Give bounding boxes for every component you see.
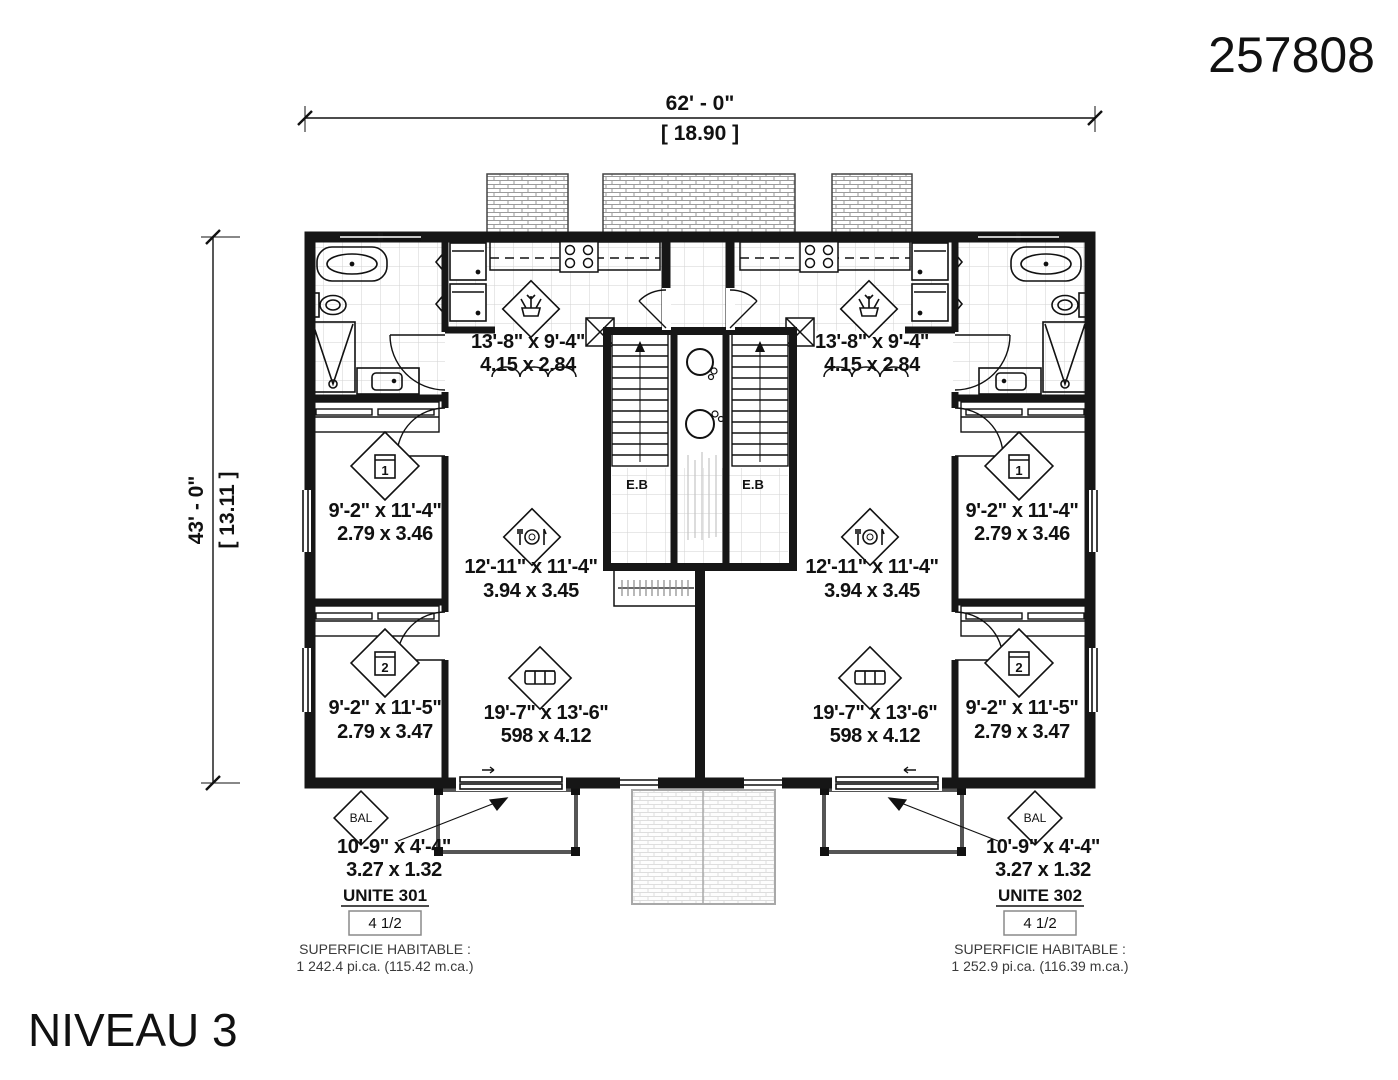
area-title: SUPERFICIE HABITABLE :	[299, 941, 471, 957]
bedroom-number: 2	[381, 660, 388, 675]
dining-dim-imperial: 12'-11" x 11'-4"	[805, 556, 938, 578]
bed-icon: 1	[351, 432, 419, 500]
bed-icon: 1	[985, 432, 1053, 500]
area-value: 1 252.9 pi.ca. (116.39 m.ca.)	[951, 958, 1128, 974]
dryer-icon	[450, 284, 486, 321]
bedroom-number: 1	[381, 463, 388, 478]
height-dimension-metric: [ 13.11 ]	[216, 471, 239, 548]
kitchen-dim-metric: 4.15 x 2.84	[480, 354, 577, 376]
bedroom1-dim-imperial: 9'-2" x 11'-4"	[966, 500, 1079, 522]
unit-302-info: UNITE 302 4 1/2 SUPERFICIE HABITABLE : 1…	[951, 886, 1128, 974]
water-heaters	[686, 349, 724, 438]
balcony-dim-imperial: 10'-9" x 4'-4"	[986, 836, 1100, 858]
dining-dim-metric: 3.94 x 3.45	[483, 580, 579, 602]
living-dim-metric: 598 x 4.12	[830, 725, 921, 747]
dining-dim-metric: 3.94 x 3.45	[824, 580, 920, 602]
unit-configuration: 4 1/2	[368, 915, 401, 932]
balcony-unit-301	[434, 786, 580, 856]
level-title: NIVEAU 3	[28, 1004, 238, 1056]
living-dim-metric: 598 x 4.12	[501, 725, 592, 747]
bedroom2-dim-imperial: 9'-2" x 11'-5"	[966, 697, 1079, 719]
bedroom2-dim-imperial: 9'-2" x 11'-5"	[329, 697, 442, 719]
balcony-dim-metric: 3.27 x 1.32	[346, 859, 442, 881]
sofa-icon	[839, 647, 901, 709]
area-title: SUPERFICIE HABITABLE :	[954, 941, 1126, 957]
balcony-label: BAL	[1024, 811, 1047, 825]
balcony-unit-302	[820, 786, 966, 856]
living-dim-imperial: 19'-7" x 13'-6"	[813, 702, 938, 724]
bed-icon: 2	[351, 629, 419, 697]
balcony-dim-imperial: 10'-9" x 4'-4"	[337, 836, 451, 858]
bedroom1-dim-metric: 2.79 x 3.46	[974, 523, 1070, 545]
door-slide-arrow-icon	[482, 767, 494, 773]
water-heater-icon	[686, 410, 714, 438]
floor-plan-page: 62' - 0" [ 18.90 ] 43' - 0" [ 13.11 ] 1	[0, 0, 1398, 1080]
bedroom1-dim-metric: 2.79 x 3.46	[337, 523, 433, 545]
entry-wardrobe	[614, 570, 698, 606]
width-dimension-imperial: 62' - 0"	[666, 92, 735, 115]
upper-decks	[487, 174, 912, 233]
balcony-label: BAL	[350, 811, 373, 825]
washer-icon	[912, 243, 948, 280]
unit-name: UNITE 301	[343, 886, 427, 905]
area-value: 1 242.4 pi.ca. (115.42 m.ca.)	[296, 958, 473, 974]
stove-icon	[800, 240, 838, 272]
unit-301-info: UNITE 301 4 1/2 SUPERFICIE HABITABLE : 1…	[296, 886, 473, 974]
sliding-door-icon	[836, 777, 938, 782]
bedroom-number: 1	[1015, 463, 1022, 478]
kitchen-dim-imperial: 13'-8" x 9'-4"	[815, 331, 929, 353]
unit-configuration: 4 1/2	[1023, 915, 1056, 932]
washer-icon	[450, 243, 486, 280]
floor-plan-drawing: 62' - 0" [ 18.90 ] 43' - 0" [ 13.11 ] 1	[0, 0, 1398, 1080]
bedroom1-dim-imperial: 9'-2" x 11'-4"	[329, 500, 442, 522]
living-dim-imperial: 19'-7" x 13'-6"	[484, 702, 609, 724]
width-dimension-metric: [ 18.90 ]	[661, 122, 739, 145]
kitchen-dim-imperial: 13'-8" x 9'-4"	[471, 331, 585, 353]
bedroom2-dim-metric: 2.79 x 3.47	[974, 721, 1070, 743]
stove-icon	[560, 240, 598, 272]
sliding-door-icon	[460, 777, 562, 782]
kitchen-dim-metric: 4.15 x 2.84	[824, 354, 921, 376]
balcony-dim-metric: 3.27 x 1.32	[995, 859, 1091, 881]
plan-number: 257808	[1208, 27, 1375, 83]
bedroom2-dim-metric: 2.79 x 3.47	[337, 721, 433, 743]
water-heater-icon	[687, 349, 713, 375]
dining-dim-imperial: 12'-11" x 11'-4"	[464, 556, 597, 578]
dryer-icon	[912, 284, 948, 321]
lower-center-deck	[632, 790, 775, 904]
bedroom-number: 2	[1015, 660, 1022, 675]
unit-name: UNITE 302	[998, 886, 1082, 905]
eb-label: E.B	[742, 477, 764, 492]
bed-icon: 2	[985, 629, 1053, 697]
height-dimension-imperial: 43' - 0"	[185, 476, 208, 545]
sofa-icon	[509, 647, 571, 709]
door-slide-arrow-icon	[904, 767, 916, 773]
eb-label: E.B	[626, 477, 648, 492]
